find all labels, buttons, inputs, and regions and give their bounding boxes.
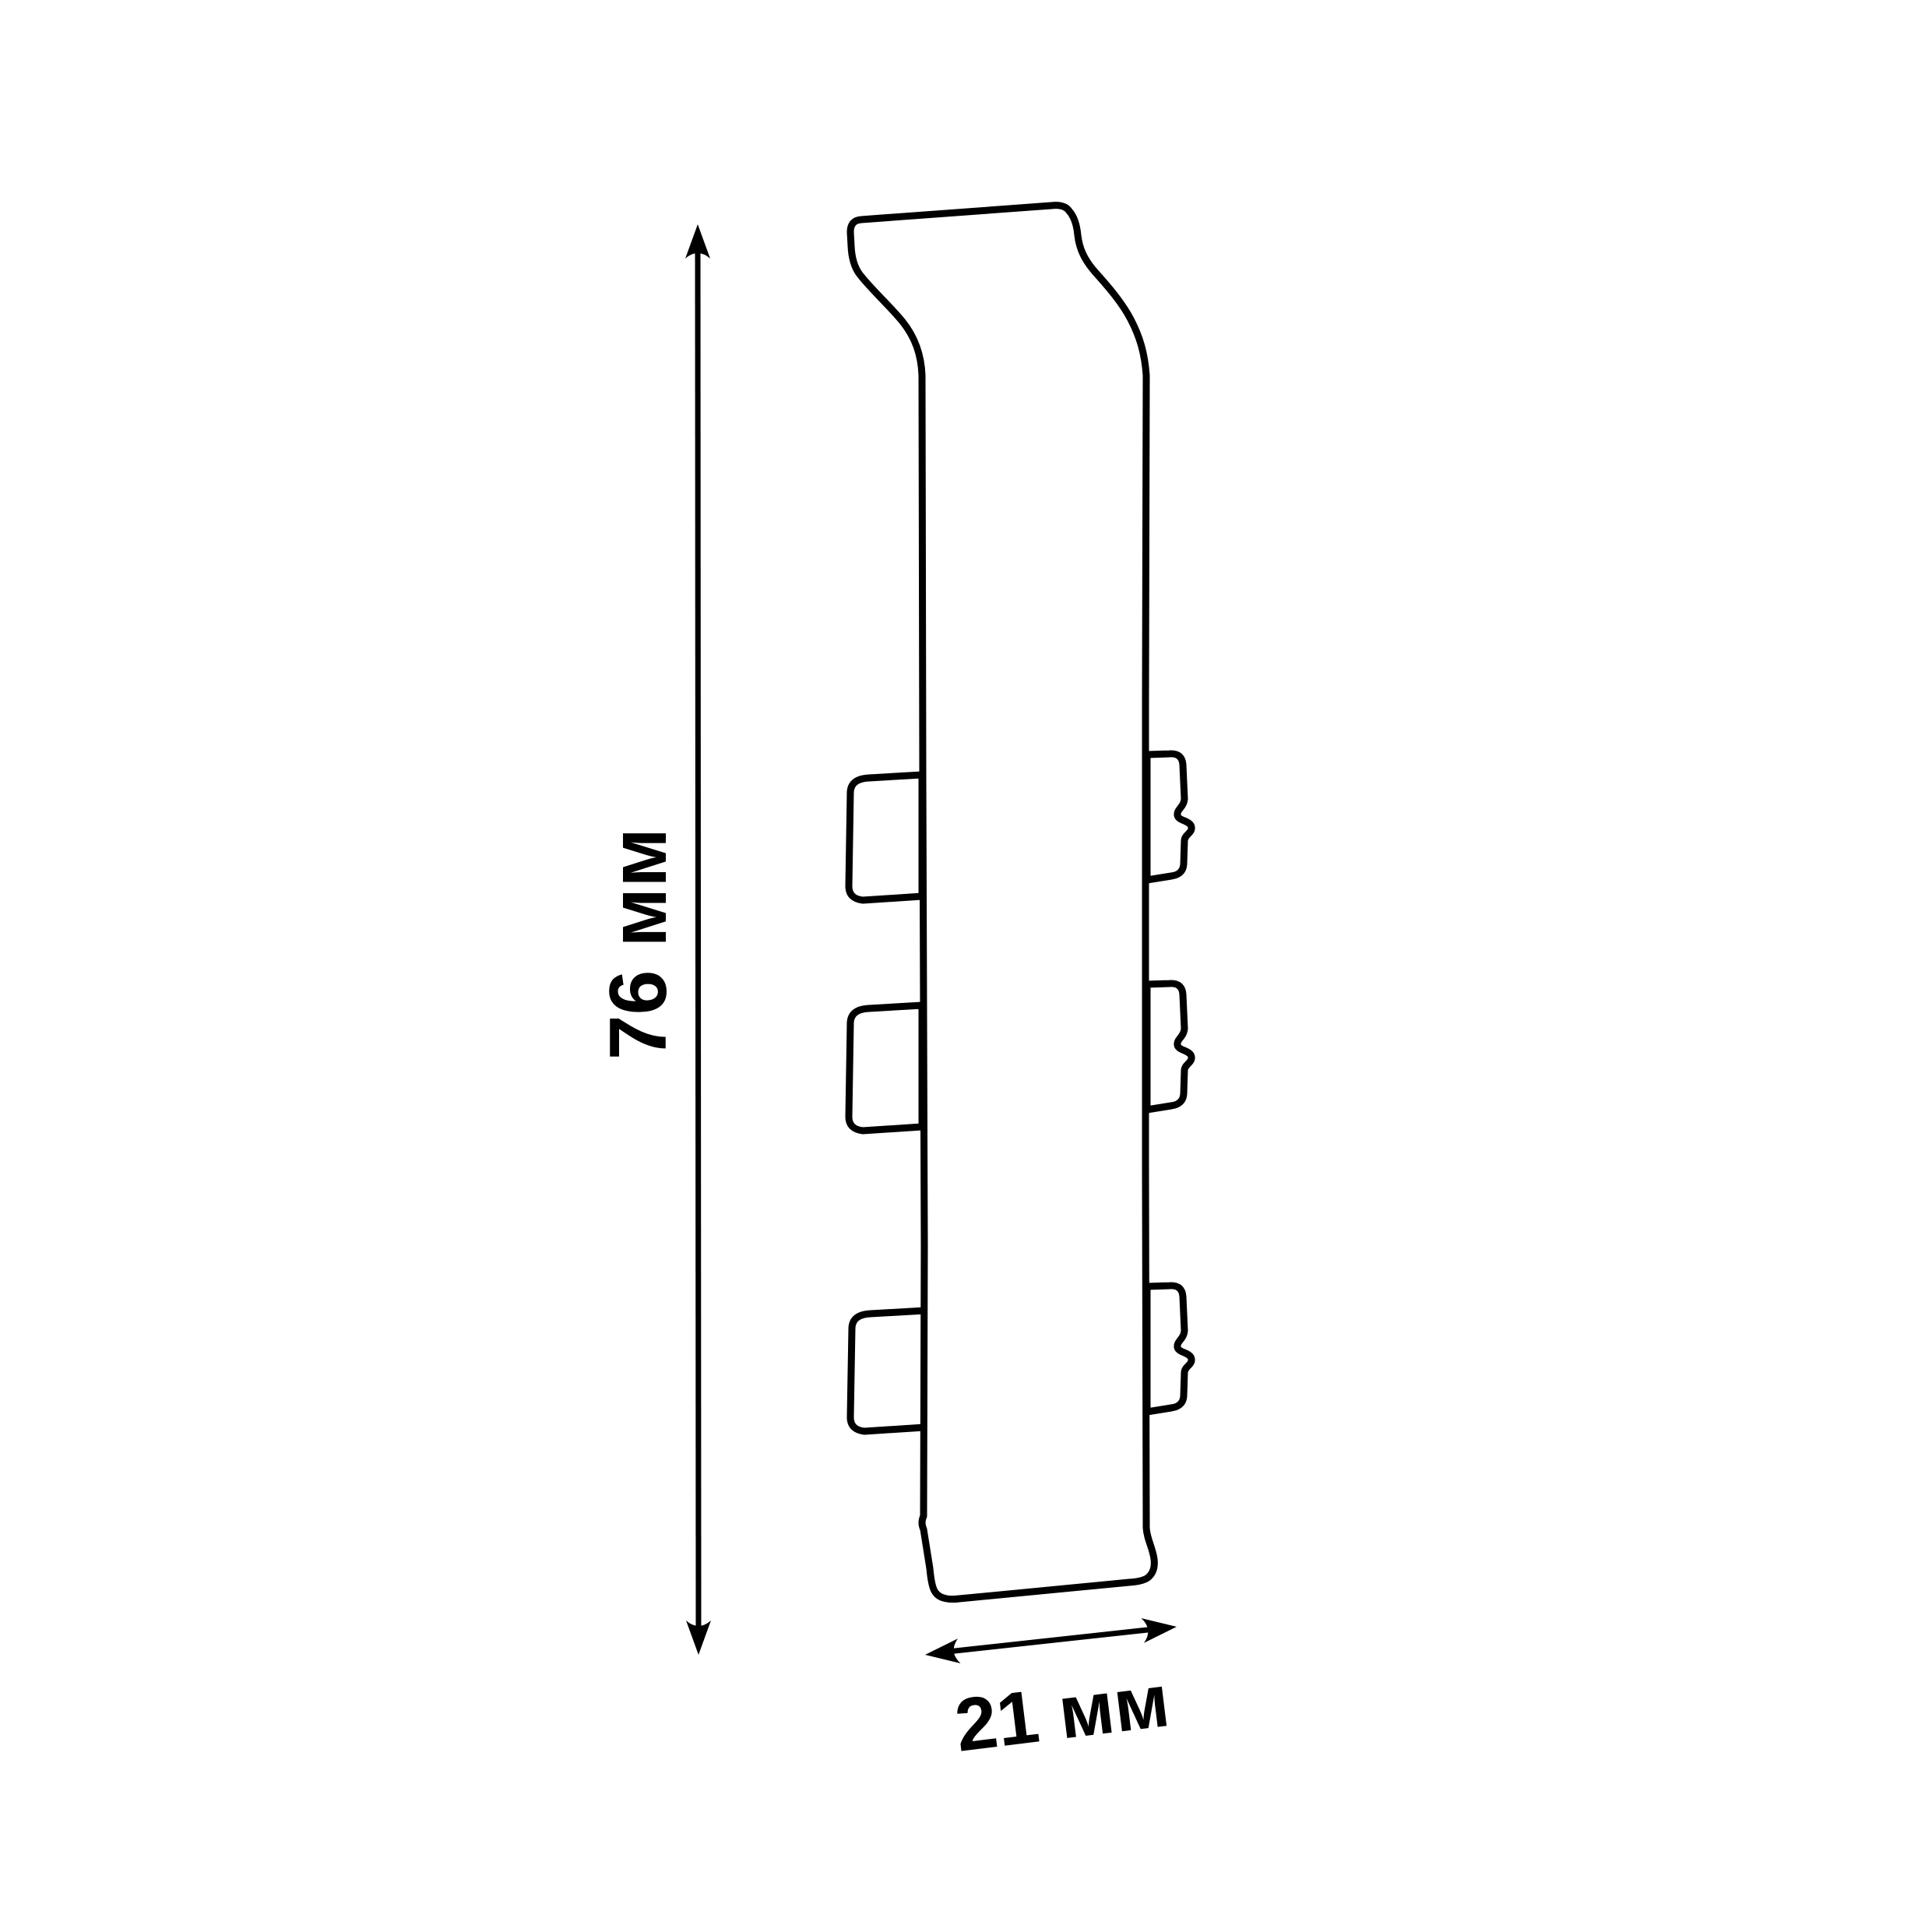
height-dimension: 76 мм xyxy=(593,224,711,1655)
right-tab-3 xyxy=(1147,1286,1191,1412)
left-tab-1 xyxy=(849,775,922,900)
width-dimension-line xyxy=(934,1628,1169,1653)
right-tab-1 xyxy=(1147,754,1191,880)
right-tab-2 xyxy=(1147,984,1191,1110)
height-dimension-label: 76 мм xyxy=(593,828,684,1060)
left-tab-2 xyxy=(849,1005,922,1131)
height-dimension-line xyxy=(698,235,699,1645)
diagram-canvas: 76 мм 21 мм xyxy=(0,0,1932,1932)
technical-drawing: 76 мм 21 мм xyxy=(0,0,1932,1932)
left-tab-3 xyxy=(850,1311,925,1431)
width-dimension: 21 мм xyxy=(924,1614,1178,1768)
width-dimension-label: 21 мм xyxy=(951,1659,1174,1768)
